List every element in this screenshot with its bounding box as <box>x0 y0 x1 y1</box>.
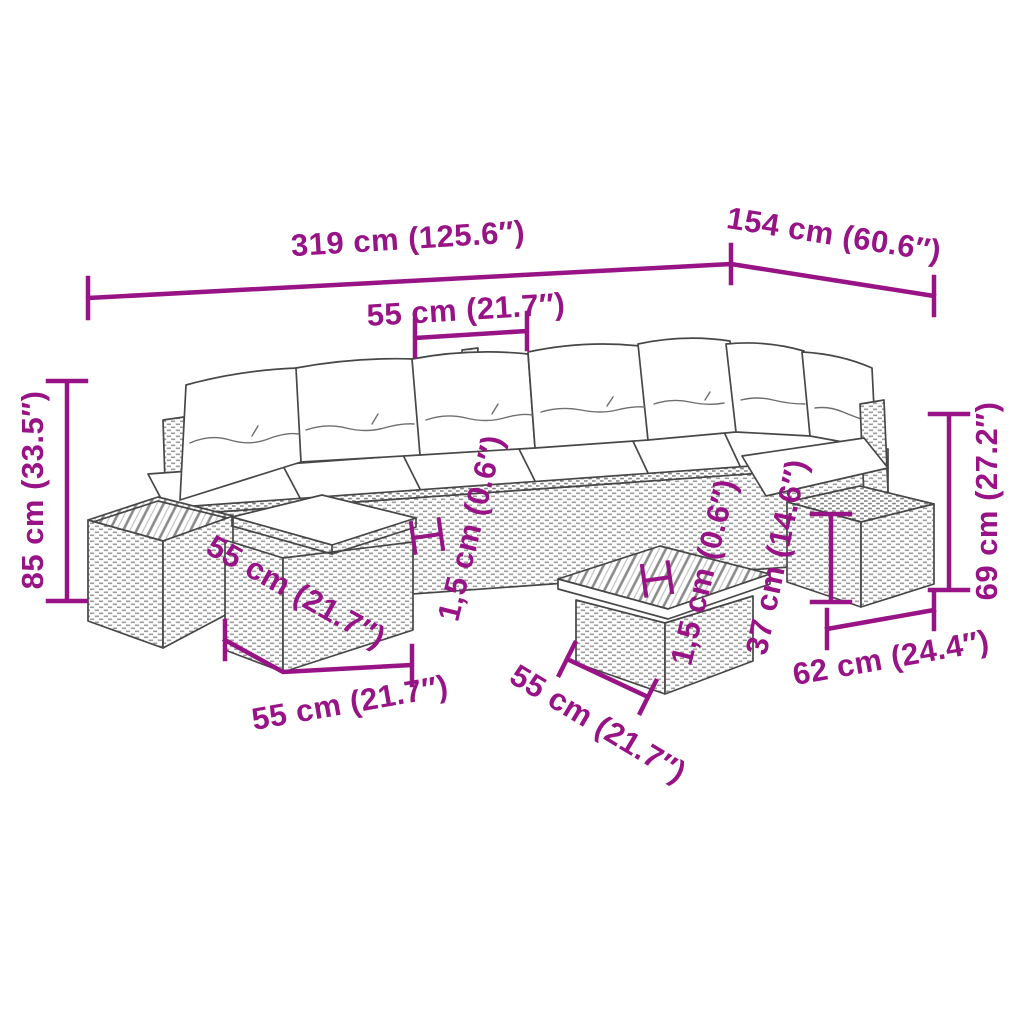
dim-line-total-depth <box>731 264 934 315</box>
left-table-side <box>88 520 163 648</box>
sofa-set-line-art <box>0 0 1024 1024</box>
dimension-diagram: 319 cm (125.6″) 154 cm (60.6″) 55 cm (21… <box>0 0 1024 1024</box>
back-cushion <box>528 344 648 448</box>
dim-label-total-height: 85 cm (33.5″) <box>15 391 51 590</box>
stool-front <box>861 504 934 607</box>
back-cushion <box>638 338 736 440</box>
dim-label-back-height: 69 cm (27.2″) <box>969 402 1005 601</box>
back-cushion <box>296 359 420 462</box>
dim-line-back-height <box>930 414 968 590</box>
back-cushion <box>726 343 810 436</box>
sofa-illustration <box>88 338 934 694</box>
dim-line-total-height <box>48 381 86 601</box>
